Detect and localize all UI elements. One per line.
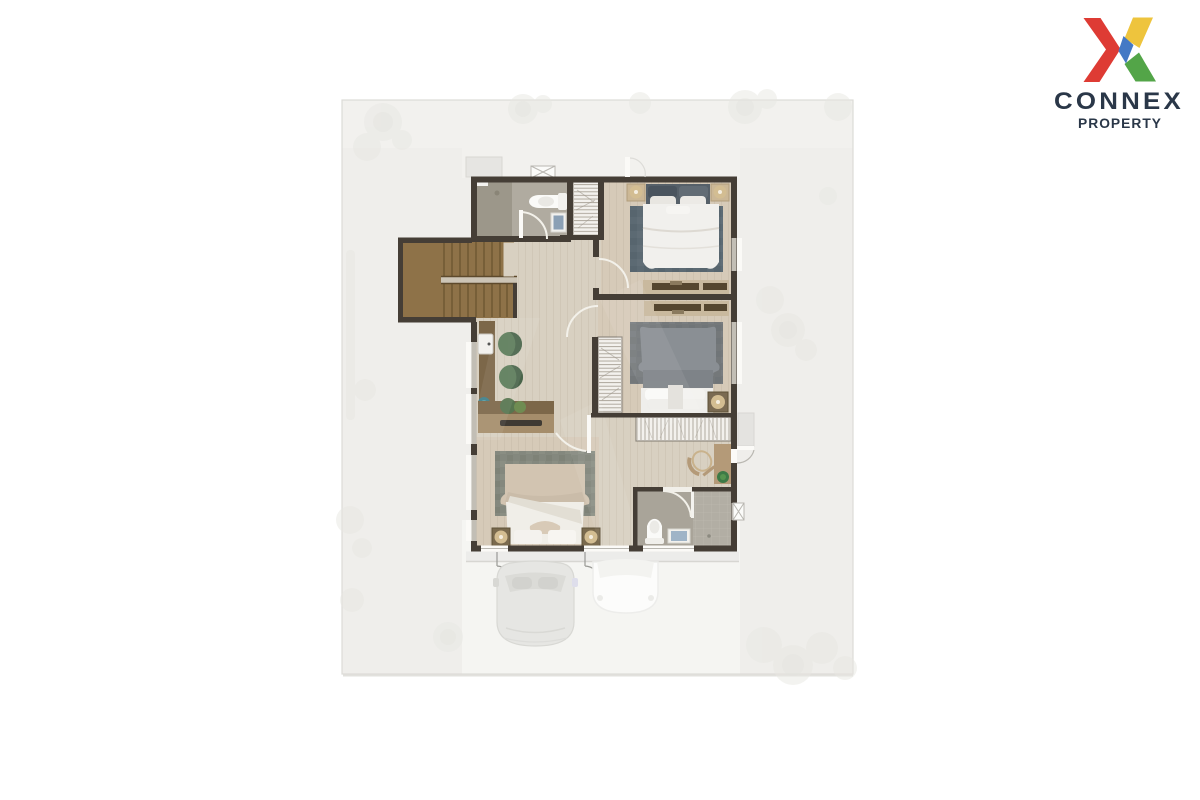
svg-text:CONNEX: CONNEX — [1054, 88, 1184, 115]
svg-text:PROPERTY: PROPERTY — [1078, 116, 1162, 131]
